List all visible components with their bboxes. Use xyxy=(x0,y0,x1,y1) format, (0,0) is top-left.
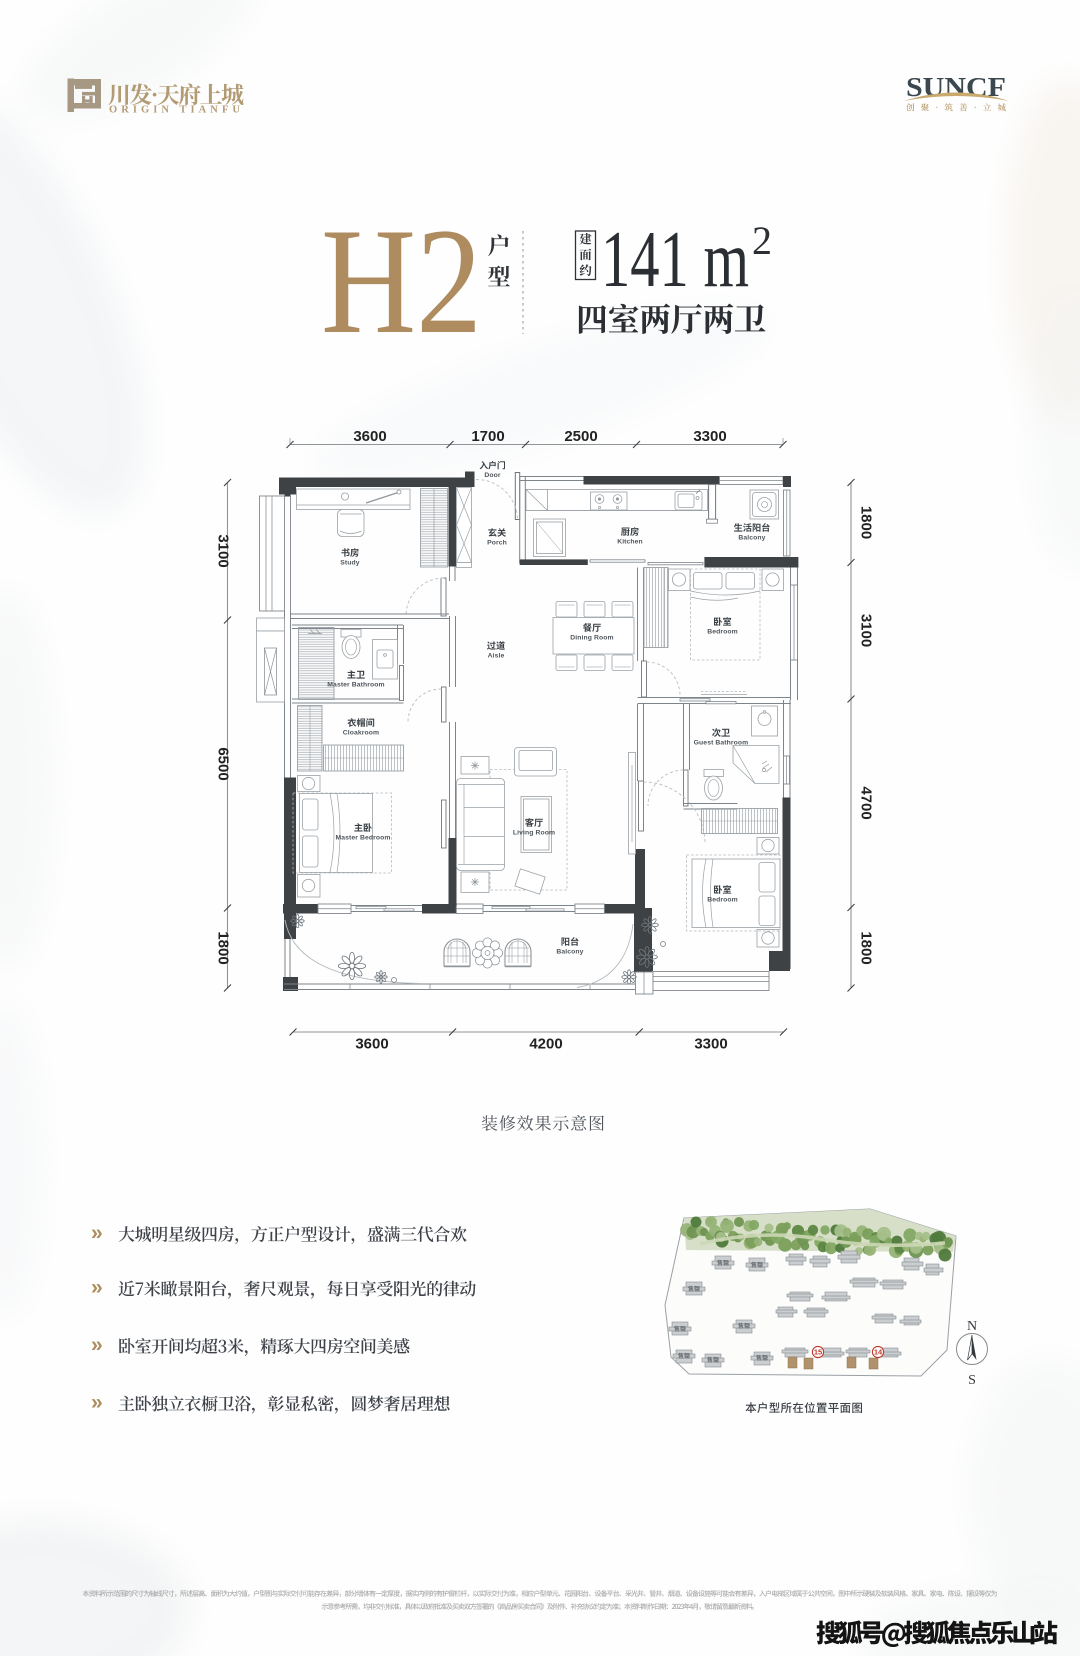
svg-text:3600: 3600 xyxy=(355,1036,388,1053)
svg-text:Bedroom: Bedroom xyxy=(707,897,738,904)
svg-text:Living Room: Living Room xyxy=(513,830,555,837)
svg-text:14: 14 xyxy=(874,1348,883,1357)
svg-text:1700: 1700 xyxy=(471,428,504,445)
svg-text:2500: 2500 xyxy=(564,428,597,445)
svg-text:3100: 3100 xyxy=(858,614,875,647)
svg-text:Porch: Porch xyxy=(487,540,507,547)
svg-text:141 m: 141 m xyxy=(601,216,749,304)
svg-text:3300: 3300 xyxy=(693,428,726,445)
svg-text:»: » xyxy=(91,1276,103,1299)
svg-text:4200: 4200 xyxy=(529,1036,562,1053)
svg-text:Balcony: Balcony xyxy=(556,949,583,956)
svg-text:15: 15 xyxy=(814,1348,822,1357)
svg-text:3100: 3100 xyxy=(215,534,232,567)
svg-text:»: » xyxy=(91,1334,103,1357)
svg-text:3600: 3600 xyxy=(353,428,386,445)
svg-text:1800: 1800 xyxy=(858,506,875,539)
svg-text:Balcony: Balcony xyxy=(738,535,765,542)
svg-text:1800: 1800 xyxy=(215,931,232,964)
svg-text:Bedroom: Bedroom xyxy=(707,629,738,636)
svg-text:6500: 6500 xyxy=(215,747,232,780)
svg-text:»: » xyxy=(91,1391,103,1414)
svg-text:Kitchen: Kitchen xyxy=(617,539,643,546)
svg-text:1800: 1800 xyxy=(858,931,875,964)
svg-text:»: » xyxy=(91,1222,103,1245)
svg-text:Master Bathroom: Master Bathroom xyxy=(327,682,384,689)
svg-text:4700: 4700 xyxy=(858,786,875,819)
svg-text:Study: Study xyxy=(340,560,360,567)
svg-text:Guest Bathroom: Guest Bathroom xyxy=(694,740,749,747)
svg-text:H2: H2 xyxy=(321,197,482,365)
svg-text:Door: Door xyxy=(484,472,501,479)
svg-text:2: 2 xyxy=(752,218,772,263)
svg-text:N: N xyxy=(967,1319,977,1334)
svg-text:Aisle: Aisle xyxy=(488,653,505,660)
svg-text:Master Bedroom: Master Bedroom xyxy=(335,835,390,842)
svg-text:3300: 3300 xyxy=(694,1036,727,1053)
svg-text:Dining Room: Dining Room xyxy=(570,635,613,642)
svg-text:S: S xyxy=(968,1373,976,1388)
svg-text:Cloakroom: Cloakroom xyxy=(343,730,379,737)
